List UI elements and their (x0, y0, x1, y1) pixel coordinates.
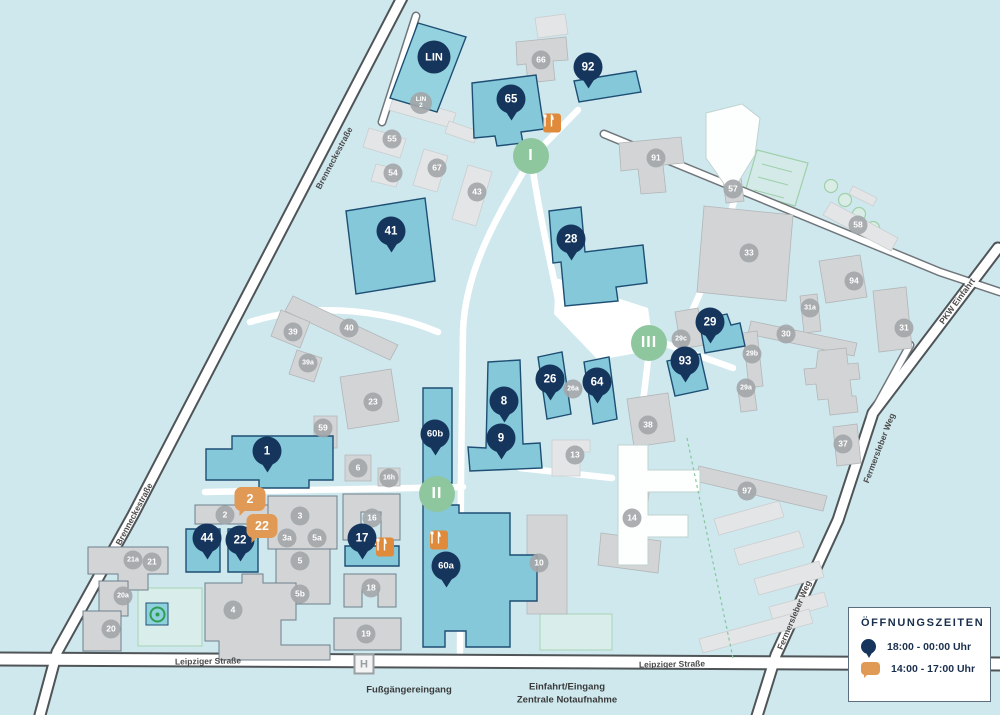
map-pin-label: 92 (582, 61, 595, 73)
building-number-badge: 4 (224, 601, 243, 620)
entrance-roman-label: III (641, 334, 657, 352)
building-number-badge: 13 (566, 446, 585, 465)
building-number-label: 30 (781, 330, 790, 339)
building-number-label: 55 (387, 135, 396, 144)
building-number-label: 5a (312, 534, 321, 543)
map-pin-label: 8 (501, 395, 507, 407)
map-pin-label: 44 (201, 532, 214, 544)
building-number-label: 14 (627, 514, 636, 523)
entrance-caption: Einfahrt/Eingang (529, 682, 605, 693)
fork-knife-icon (430, 531, 442, 545)
map-pin: 8 (490, 387, 519, 416)
building-number-badge: 3 (291, 507, 310, 526)
map-pin: 17 (348, 524, 377, 553)
building-number-label: 29a (740, 385, 752, 392)
building-number-badge: 23 (364, 393, 383, 412)
time-bubble-label: 22 (255, 519, 269, 533)
building-number-label: 43 (472, 188, 481, 197)
building-number-label: 19 (361, 630, 370, 639)
building-number-badge: 43 (468, 183, 487, 202)
building-number-label: 5 (298, 557, 303, 566)
map-pin-label: 9 (498, 432, 504, 444)
building-number-badge: 29a (737, 379, 756, 398)
building-number-badge: 55 (383, 130, 402, 149)
building-number-badge: 58 (849, 216, 868, 235)
street-label: Leipziger Straße (175, 655, 241, 666)
lin-circle-marker: LIN (418, 41, 451, 74)
building-number-label: 58 (853, 221, 862, 230)
building-number-label: 23 (368, 398, 377, 407)
map-pin: 9 (487, 424, 516, 453)
bubble-icon (861, 662, 880, 675)
building-number-badge: 38 (639, 416, 658, 435)
street-label: Leipziger Straße (639, 658, 705, 669)
entrance-caption-text: Einfahrt/Eingang (529, 682, 605, 693)
building-number-label: 5b (295, 590, 305, 599)
street-name: Fermersleber Weg (775, 579, 813, 651)
building-number-label: 29b (746, 351, 758, 358)
building-number-badge: 19 (357, 625, 376, 644)
opening-hours-legend: ÖFFNUNGSZEITEN 18:00 - 00:00 Uhr 14:00 -… (848, 607, 991, 702)
map-pin-label: 17 (356, 532, 369, 544)
bus-stop-icon: H (354, 654, 375, 675)
building-number-badge: 21a (124, 551, 143, 570)
map-pin-label: 22 (234, 534, 247, 546)
building-number-badge: 33 (740, 244, 759, 263)
restaurant-icon (430, 531, 448, 550)
building-number-badge: 18 (362, 579, 381, 598)
map-pin: 60b (421, 420, 450, 449)
building-number-badge: 10 (530, 554, 549, 573)
building-number-label: 3 (298, 512, 303, 521)
legend-title: ÖFFNUNGSZEITEN (861, 617, 980, 629)
map-pin-label: 93 (679, 355, 692, 367)
map-pin: 93 (671, 347, 700, 376)
building-number-badge: 67 (428, 159, 447, 178)
building-number-badge: 26a (564, 380, 583, 399)
street-label: Brenneckestraße (113, 481, 154, 547)
building-number-badge: 91 (647, 149, 666, 168)
street-name: Brenneckestraße (113, 481, 154, 547)
street-name: Leipziger Straße (639, 658, 705, 669)
time-bubble-marker: 22 (247, 514, 278, 538)
building-number-label: 16h (383, 475, 395, 482)
map-pin-label: 65 (505, 93, 518, 105)
building-number-label: 6 (356, 464, 361, 473)
building-number-badge: 39 (284, 323, 303, 342)
restaurant-icon (376, 538, 394, 557)
building-number-label: 16 (367, 514, 376, 523)
map-pin: 60a (432, 552, 461, 581)
building-number-label: 66 (536, 56, 545, 65)
map-pin: 41 (377, 217, 406, 246)
map-pin: 64 (583, 368, 612, 397)
building-number-label: 26a (567, 386, 579, 393)
building-number-label: 91 (651, 154, 660, 163)
building-number-label: 31a (804, 305, 816, 312)
map-pin-label: 60a (438, 561, 454, 572)
building-number-label: 54 (388, 169, 397, 178)
map-pin: 65 (497, 85, 526, 114)
entrance-roman-label: I (528, 147, 533, 165)
street-name: PKW Einfahrt (937, 276, 977, 326)
map-pin-label: 1 (264, 445, 270, 457)
building-number-label: 3a (282, 534, 291, 543)
legend-entry-label: 18:00 - 00:00 Uhr (887, 641, 971, 653)
map-pin-label: 26 (544, 373, 557, 385)
building-number-label: 40 (344, 324, 353, 333)
building-number-badge: 66 (532, 51, 551, 70)
building-number-label: 67 (432, 164, 441, 173)
street-label: PKW Einfahrt (937, 276, 977, 326)
building-number-badge: 5b (291, 585, 310, 604)
map-pin: 26 (536, 365, 565, 394)
fork-knife-icon (543, 114, 555, 128)
building-number-label: 38 (643, 421, 652, 430)
building-number-badge: 29b (743, 345, 762, 364)
building-number-badge: 21 (143, 553, 162, 572)
street-name: Brenneckestraße (313, 125, 354, 191)
entrance-roman-marker: III (631, 325, 667, 361)
building-number-badge: 6 (349, 459, 368, 478)
legend-entry-evening: 18:00 - 00:00 Uhr (861, 639, 980, 654)
map-pin: 1 (253, 437, 282, 466)
building-number-label: 4 (231, 606, 236, 615)
time-bubble-marker: 2 (235, 487, 266, 511)
street-name: Fermersleber Weg (861, 412, 897, 485)
building-number-badge: 5a (308, 529, 327, 548)
building-number-label: 21 (147, 558, 156, 567)
building-number-label: LIN 2 (416, 97, 426, 110)
building-number-badge: 29c (672, 330, 691, 349)
building-number-badge: 54 (384, 164, 403, 183)
map-pin: 44 (193, 524, 222, 553)
building-number-badge: 30 (777, 325, 796, 344)
building-number-badge: 59 (314, 419, 333, 438)
campus-map: 65924128299326648960b144221760aLIN222III… (0, 0, 1000, 715)
building-number-label: 57 (728, 185, 737, 194)
building-number-label: 33 (744, 249, 753, 258)
building-number-badge: 37 (834, 435, 853, 454)
entrance-caption: Fußgängereingang (366, 685, 452, 696)
building-number-badge: 40 (340, 319, 359, 338)
building-number-label: 39 (288, 328, 297, 337)
entrance-caption-text: Fußgängereingang (366, 685, 452, 696)
building-number-badge: 97 (738, 482, 757, 501)
fork-knife-icon (376, 538, 388, 552)
building-number-badge: 31 (895, 319, 914, 338)
building-number-label: 39a (302, 360, 314, 367)
entrance-caption-text: Zentrale Notaufnahme (517, 695, 617, 706)
map-pin-label: 28 (565, 233, 578, 245)
legend-entry-afternoon: 14:00 - 17:00 Uhr (861, 662, 980, 675)
building-number-label: 20 (106, 625, 115, 634)
building-number-badge: 94 (845, 272, 864, 291)
building-number-badge: 39a (299, 354, 318, 373)
building-number-badge: 57 (724, 180, 743, 199)
entrance-roman-label: II (432, 485, 443, 503)
building-number-label: 18 (366, 584, 375, 593)
building-number-badge: LIN 2 (410, 92, 432, 114)
street-name: Leipziger Straße (175, 655, 241, 666)
building-number-badge: 3a (278, 529, 297, 548)
building-number-label: 94 (849, 277, 858, 286)
building-number-label: 31 (899, 324, 908, 333)
building-number-label: 2 (223, 511, 228, 520)
building-number-badge: 14 (623, 509, 642, 528)
meeting-point-ring (149, 606, 165, 622)
time-bubble-label: 2 (247, 492, 254, 506)
map-pin-label: 64 (591, 376, 604, 388)
map-pin-label: 29 (704, 316, 717, 328)
building-number-badge: 20a (114, 587, 133, 606)
bus-stop-label: H (360, 658, 368, 670)
restaurant-icon (543, 114, 561, 133)
meeting-point-dot (155, 612, 159, 616)
building-number-label: 10 (534, 559, 543, 568)
legend-entry-label: 14:00 - 17:00 Uhr (891, 663, 975, 675)
street-label: Fermersleber Weg (775, 579, 813, 651)
building-number-badge: 31a (801, 299, 820, 318)
map-pin: 28 (557, 225, 586, 254)
map-pin: 92 (574, 53, 603, 82)
entrance-roman-marker: I (513, 138, 549, 174)
map-pin-label: 60b (427, 429, 443, 440)
building-number-label: 13 (570, 451, 579, 460)
lin-marker-label: LIN (425, 51, 443, 63)
building-number-label: 21a (127, 557, 139, 564)
building-number-label: 97 (742, 487, 751, 496)
building-number-label: 37 (838, 440, 847, 449)
building-number-label: 59 (318, 424, 327, 433)
street-label: Fermersleber Weg (861, 412, 897, 485)
entrance-roman-marker: II (419, 476, 455, 512)
building-number-badge: 2 (216, 506, 235, 525)
building-number-badge: 16h (380, 469, 399, 488)
building-number-label: 29c (675, 336, 687, 343)
map-pin-label: 41 (385, 225, 398, 237)
entrance-caption: Zentrale Notaufnahme (517, 695, 617, 706)
meeting-point-icon (146, 603, 169, 626)
building-number-badge: 5 (291, 552, 310, 571)
pin-icon (861, 639, 876, 654)
building-number-label: 20a (117, 593, 129, 600)
building-number-badge: 20 (102, 620, 121, 639)
map-pin: 29 (696, 308, 725, 337)
street-label: Brenneckestraße (313, 125, 354, 191)
